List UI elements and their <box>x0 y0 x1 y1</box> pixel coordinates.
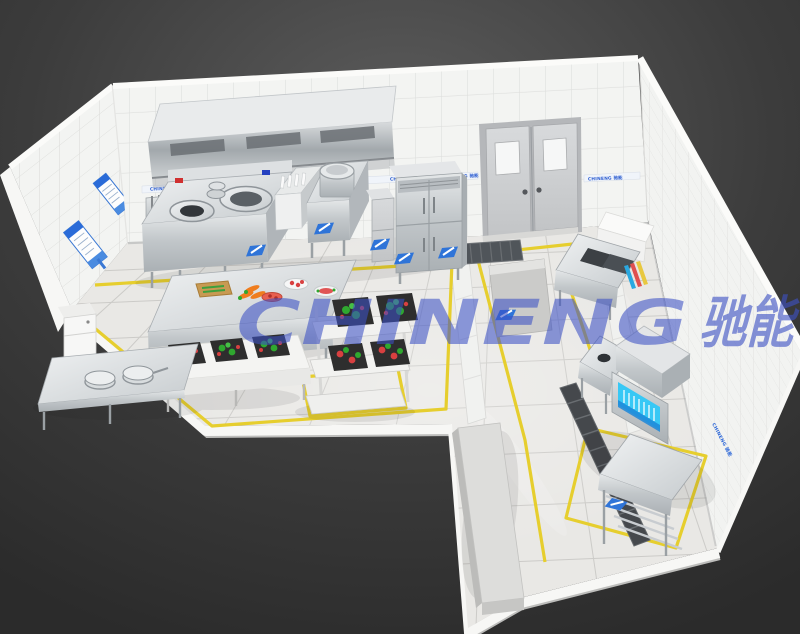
door-window-left <box>495 141 520 175</box>
control-panel-blue <box>262 170 270 175</box>
steamer-pot <box>207 190 225 199</box>
four-door-refrigerator <box>389 161 467 284</box>
control-panel-red <box>175 178 183 183</box>
kitchen-3d-render: CHINENG 驰能 CHINENG 驰能 CHINENG 驰能 CHINENG… <box>0 0 800 634</box>
double-swing-door <box>479 117 582 242</box>
watermark-chinese: 驰能 <box>696 291 800 356</box>
door-handle-left <box>522 189 527 194</box>
watermark: CHINENG 驰能 <box>226 287 800 359</box>
door-handle-right <box>536 187 541 192</box>
scene-canvas: CHINENG 驰能 CHINENG 驰能 CHINENG 驰能 CHINENG… <box>0 0 800 634</box>
wood-cutting-board <box>196 281 232 297</box>
watermark-latin: CHINENG <box>226 287 696 359</box>
steamer-pot <box>209 182 225 190</box>
trench-drain-short <box>462 240 523 264</box>
door-window-right <box>543 138 567 171</box>
